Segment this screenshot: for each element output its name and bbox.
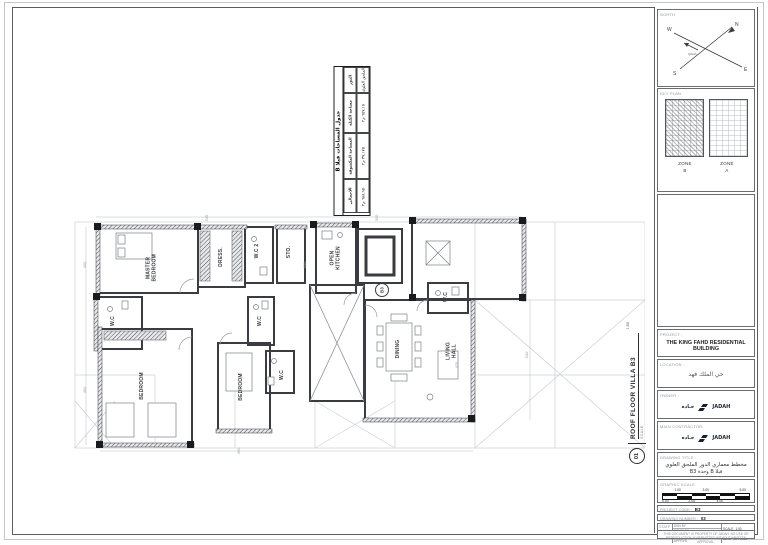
room-label-wc2: W.C 2 xyxy=(255,244,261,259)
owner-logo-text-en: JADAH xyxy=(712,404,730,410)
keyplan-label: KEY PLAN xyxy=(658,89,754,96)
drawing-number-label: DRAWING NUMBER : xyxy=(660,517,698,521)
room-label-bedroom-left: BEDROOM xyxy=(140,372,146,400)
area-table-title: جدول المساحات فيلا B xyxy=(335,67,344,215)
svg-text:N: N xyxy=(735,22,739,28)
bed xyxy=(148,403,176,437)
project-section: PROJECT : THE KING FAHD RESIDENTIAL BUIL… xyxy=(657,329,755,357)
svg-text:360: 360 xyxy=(236,447,241,454)
graphic-scale-label: GRAPHIC SCALE xyxy=(658,480,754,487)
room-label-bedroom-mid: BEDROOM xyxy=(239,373,245,401)
unit-tag-b3: B3 xyxy=(379,287,384,293)
project-code-value: B3 xyxy=(695,507,701,512)
room-label-sto: STO. xyxy=(287,246,293,258)
area-table-header: الدور xyxy=(344,67,357,93)
keyplan-zone-b-thumbnail xyxy=(665,99,704,157)
room-label-wc-mid: W.C xyxy=(258,316,264,326)
svg-text:500: 500 xyxy=(302,261,307,268)
disclaimer-text: THIS DOCUMENT IS PROPERTY OF JADAH. NO U… xyxy=(658,531,754,545)
area-table-header: الاجمالي xyxy=(344,179,357,213)
svg-text:E: E xyxy=(744,67,748,73)
room-label-master-bedroom: MASTER BEDROOM xyxy=(146,255,158,282)
north-section: NORTH N E S W Qiblah xyxy=(657,9,755,87)
project-name: THE KING FAHD RESIDENTIAL BUILDING xyxy=(658,337,754,357)
drawing-number-value: 03 xyxy=(701,516,706,521)
svg-text:Qiblah: Qiblah xyxy=(688,52,697,56)
area-table-value: ٣٧,١٧٥ م٢ xyxy=(357,133,370,179)
svg-text:W: W xyxy=(667,27,672,33)
project-code-section: PROJECT CODE : B3 xyxy=(657,505,755,512)
skylight xyxy=(426,241,450,265)
area-table: جدول المساحات فيلا B الدور مساحة الكتلة … xyxy=(334,66,371,216)
jadah-logo-icon xyxy=(697,434,709,443)
callout-scale-label: SCALE xyxy=(640,333,644,439)
graphic-scale-section: GRAPHIC SCALE 1.00 3.00 5.00 0.00 2.00 4… xyxy=(657,479,755,503)
room-label-dining: DINING xyxy=(396,340,402,359)
svg-text:S: S xyxy=(673,71,677,77)
keyplan-section: KEY PLAN ZONE B ZONE A xyxy=(657,88,755,192)
project-code-label: PROJECT CODE : xyxy=(660,508,692,512)
title-block: NORTH N E S W Qiblah KEY PLAN xyxy=(654,7,757,533)
area-table-value: الملحق العلوي xyxy=(357,67,370,93)
drawing-title-line1: مخطط معماري الدور الملحق العلوي xyxy=(658,460,754,468)
drawing-callout: 01 ROOF FLOOR VILLA B3 SCALE 1:50 xyxy=(625,322,649,464)
bed xyxy=(106,403,134,437)
callout-scale-value: 1:50 xyxy=(626,322,630,329)
callout-title: ROOF FLOOR VILLA B3 xyxy=(630,333,639,439)
stair-void xyxy=(310,285,364,401)
svg-text:450: 450 xyxy=(82,386,87,393)
revision-area xyxy=(657,194,755,327)
svg-text:470: 470 xyxy=(454,361,459,368)
owner-section: OWNER : جـادة JADAH xyxy=(657,390,755,419)
area-table-header: مساحة الكتلة xyxy=(344,93,357,133)
room-label-wc-left: W.C xyxy=(111,316,117,326)
room-label-dress: DRESS. xyxy=(219,247,225,267)
svg-text:500: 500 xyxy=(524,351,529,358)
drawing-title-section: DRAWING TITLE : مخطط معماري الدور الملحق… xyxy=(657,452,755,477)
callout-divider xyxy=(628,443,646,444)
room-label-living-hall: LIVING HALL xyxy=(446,342,458,360)
floor-plan-drawing: 400 450 545 500 470 300 360 500 xyxy=(60,205,645,455)
zone-b-label: ZONE B xyxy=(667,160,704,174)
contractor-logo: جـادة JADAH xyxy=(658,429,754,446)
drawing-callout-rotated: 01 ROOF FLOOR VILLA B3 SCALE 1:50 xyxy=(625,322,649,464)
drawing-title-line2: فيلا B وحدة B3 xyxy=(658,468,754,475)
svg-text:545: 545 xyxy=(204,214,209,221)
owner-logo: جـادة JADAH xyxy=(658,398,754,415)
room-label-wc-top: W.C xyxy=(444,292,450,302)
area-table-value: ٦٥٧,١٨ م٢ xyxy=(357,93,370,133)
owner-logo-text-ar: جـادة xyxy=(682,404,695,410)
keyplan-zone-a-thumbnail xyxy=(709,99,748,157)
zone-a-label: ZONE A xyxy=(709,160,746,174)
contractor-logo-text-en: JADAH xyxy=(712,435,730,441)
room-label-wc-small: W.C xyxy=(280,370,286,380)
graphic-scale-bar: 1.00 3.00 5.00 0.00 2.00 4.00 xyxy=(662,488,750,503)
callout-number-circle: 01 xyxy=(629,448,645,464)
svg-text:300: 300 xyxy=(374,214,379,221)
room-label-open-kitchen: OPEN KITCHEN xyxy=(330,246,342,270)
compass-icon: N E S W Qiblah xyxy=(658,17,755,77)
area-table-header: المساحة المكشوفة xyxy=(344,133,357,179)
contractor-section: MAIN CONTRACTOR: جـادة JADAH xyxy=(657,421,755,450)
location-section: LOCATION : حي الملك فهد xyxy=(657,359,755,388)
location-value: حي الملك فهد xyxy=(658,367,754,382)
jadah-logo-icon xyxy=(697,403,709,412)
area-table-rotated: جدول المساحات فيلا B الدور مساحة الكتلة … xyxy=(334,66,371,216)
disclaimer-section: THIS DOCUMENT IS PROPERTY OF JADAH. NO U… xyxy=(657,530,755,539)
svg-text:400: 400 xyxy=(82,261,87,268)
contractor-logo-text-ar: جـادة xyxy=(682,435,695,441)
drawing-number-section: DRAWING NUMBER : 03 xyxy=(657,514,755,521)
elevator-shaft xyxy=(366,237,394,275)
area-table-value: ٦٨٨,٩٥٠ م٢ xyxy=(357,179,370,213)
